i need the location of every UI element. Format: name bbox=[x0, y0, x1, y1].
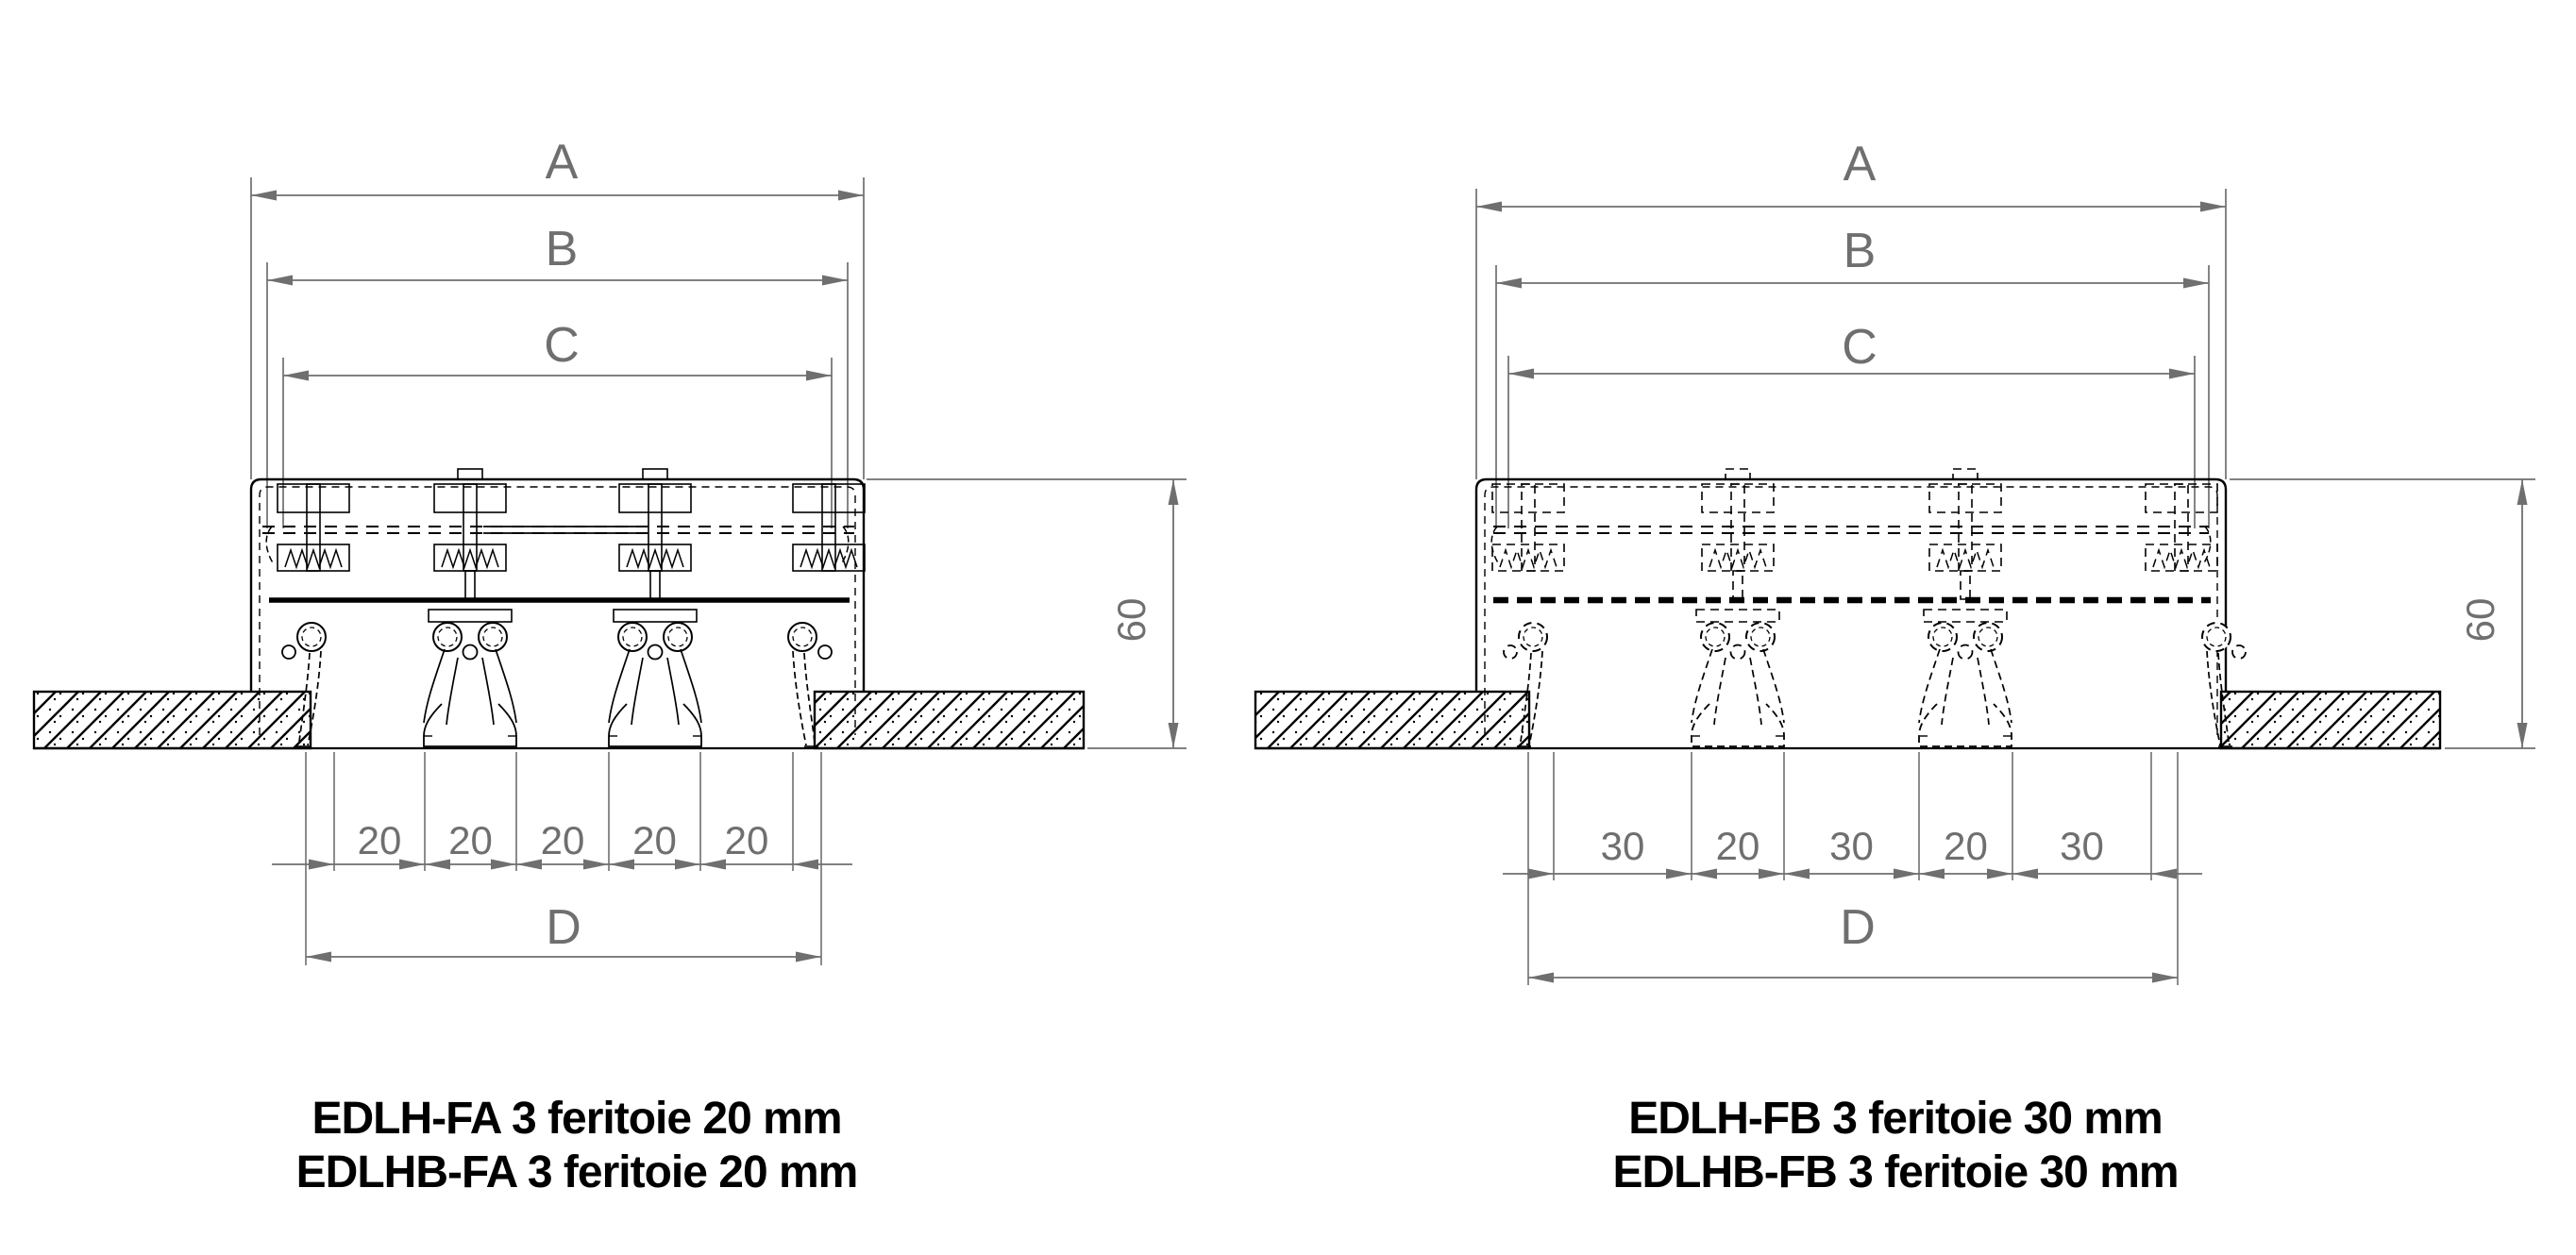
profile-cluster bbox=[1702, 469, 1774, 571]
caption-line-2: EDLHB-FB 3 feritoie 30 mm bbox=[1471, 1146, 2320, 1199]
svg-text:20: 20 bbox=[1944, 824, 1988, 868]
svg-text:60: 60 bbox=[1109, 598, 1153, 643]
svg-text:20: 20 bbox=[725, 818, 769, 862]
profile-cluster bbox=[619, 469, 691, 571]
svg-text:D: D bbox=[1840, 900, 1876, 955]
svg-text:20: 20 bbox=[448, 818, 493, 862]
dimensions-edlh-fa: ABC2020202020D60 bbox=[251, 135, 1187, 965]
profile-cluster bbox=[1929, 469, 2001, 571]
slot-dims: 2020202020 bbox=[272, 752, 852, 871]
svg-text:30: 30 bbox=[2060, 824, 2104, 868]
svg-text:20: 20 bbox=[358, 818, 402, 862]
caption-line-1: EDLH-FB 3 feritoie 30 mm bbox=[1471, 1092, 2320, 1146]
dim-d: D bbox=[1528, 752, 2178, 985]
ceiling-block-right bbox=[2221, 692, 2440, 748]
ceiling-block-left bbox=[34, 692, 311, 748]
dimensions-edlh-fb: ABC3020302030D60 bbox=[1476, 137, 2535, 985]
dim-c: C bbox=[1508, 320, 2195, 528]
profile-edlh-fb bbox=[1476, 469, 2226, 746]
dim-a: A bbox=[251, 135, 864, 479]
svg-text:B: B bbox=[1844, 224, 1877, 278]
profile-edlh-fa bbox=[251, 469, 865, 746]
svg-text:C: C bbox=[1842, 320, 1877, 375]
profile-cluster bbox=[434, 469, 506, 571]
slot-dims: 3020302030 bbox=[1503, 752, 2202, 880]
caption-line-2: EDLHB-FA 3 feritoie 20 mm bbox=[152, 1146, 1002, 1199]
svg-text:60: 60 bbox=[2458, 598, 2502, 643]
svg-text:B: B bbox=[546, 222, 579, 276]
svg-text:A: A bbox=[546, 135, 579, 190]
technical-drawing-page: ABC2020202020D60ABC3020302030D60 EDLH-FA… bbox=[0, 0, 2576, 1255]
dim-c: C bbox=[283, 318, 832, 528]
ceiling-block-right bbox=[815, 692, 1084, 748]
drawing-edlh-fb: ABC3020302030D60 bbox=[1255, 137, 2535, 985]
caption-line-1: EDLH-FA 3 feritoie 20 mm bbox=[152, 1092, 1002, 1146]
diffuser-cross-section-figure: ABC2020202020D60ABC3020302030D60 bbox=[0, 0, 2576, 1255]
svg-text:20: 20 bbox=[1716, 824, 1760, 868]
svg-text:30: 30 bbox=[1601, 824, 1645, 868]
ceiling-block-left bbox=[1255, 692, 1529, 748]
svg-text:20: 20 bbox=[541, 818, 585, 862]
svg-text:C: C bbox=[544, 318, 580, 373]
drawing-edlh-fa: ABC2020202020D60 bbox=[34, 135, 1187, 965]
svg-text:30: 30 bbox=[1829, 824, 1874, 868]
dim-b: B bbox=[1496, 224, 2209, 528]
svg-text:20: 20 bbox=[632, 818, 677, 862]
caption-right: EDLH-FB 3 feritoie 30 mm EDLHB-FB 3 feri… bbox=[1471, 1092, 2320, 1199]
dim-a: A bbox=[1476, 137, 2226, 479]
caption-left: EDLH-FA 3 feritoie 20 mm EDLHB-FA 3 feri… bbox=[152, 1092, 1002, 1199]
svg-text:D: D bbox=[546, 900, 581, 955]
deflector-divider bbox=[609, 571, 701, 746]
svg-text:A: A bbox=[1844, 137, 1877, 192]
deflector-divider bbox=[424, 571, 516, 746]
